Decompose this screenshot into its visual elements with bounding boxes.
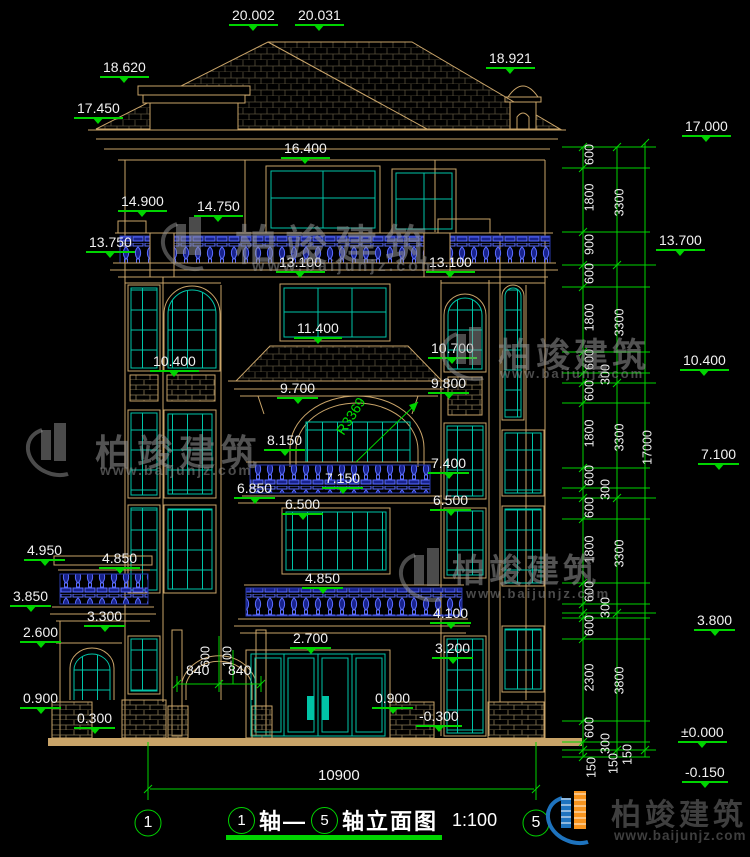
baijun-logo-icon	[545, 786, 607, 850]
watermark-logo-icon	[160, 212, 230, 274]
right-level-label: 7.100	[698, 447, 739, 465]
dim-text: 150	[608, 742, 621, 786]
level-label: 4.950	[24, 543, 65, 561]
dim-text: 3300	[614, 532, 627, 576]
right-level-label: ±0.000	[678, 725, 727, 743]
level-label: 0.300	[74, 711, 115, 729]
level-label: 8.150	[264, 433, 305, 451]
overall-width-dim: 10900	[318, 767, 360, 784]
level-label: 6.850	[234, 481, 275, 499]
right-level-label: 10.400	[680, 353, 729, 371]
dim-text: 150	[586, 746, 599, 790]
logo-tower-icon	[574, 791, 586, 829]
level-label: 16.400	[281, 141, 330, 159]
watermark-site: www.baijunjz.com	[500, 366, 644, 381]
logo-tower-icon	[41, 430, 51, 460]
level-label: 17.450	[74, 101, 123, 119]
level-label: 0.900	[372, 691, 413, 709]
level-label: 0.900	[20, 691, 61, 709]
ground-floor	[128, 626, 544, 736]
level-label: 13.750	[86, 235, 135, 253]
watermark-site: www.baijunjz.com	[252, 258, 438, 276]
logo-tower-icon	[561, 798, 571, 828]
watermark-logo-icon	[25, 418, 89, 478]
drawing-title: 1 轴— 5 轴立面图 1:100	[228, 804, 497, 836]
dim-text: 2300	[584, 656, 597, 700]
dim-text: 600	[584, 133, 597, 177]
level-label: 4.850	[302, 571, 343, 589]
roof-cupola	[505, 86, 541, 129]
logo-tower-icon	[176, 224, 186, 254]
watermark-logo-icon	[440, 322, 500, 378]
level-label: 4.100	[430, 606, 471, 624]
title-text-1: 轴—	[259, 804, 307, 836]
level-label: 20.002	[229, 8, 278, 26]
ground-line	[48, 738, 582, 746]
dim-text: 3300	[614, 181, 627, 225]
baijun-brand-block: 柏竣建筑 www.baijunjz.com	[545, 784, 750, 854]
watermark-site: www.baijunjz.com	[466, 586, 610, 601]
right-level-label: -0.150	[682, 765, 728, 783]
level-label: 7.400	[428, 456, 469, 474]
dim-text: 3800	[614, 659, 627, 703]
dim-text: 600	[584, 252, 597, 296]
title-text-2: 轴立面图	[342, 804, 438, 836]
dim-text: 150	[622, 733, 635, 777]
level-label: 10.400	[150, 354, 199, 372]
watermark-logo-icon	[398, 543, 456, 597]
logo-tower-icon	[54, 423, 66, 461]
logo-tower-icon	[189, 217, 201, 255]
dim-text: 300	[600, 468, 613, 512]
level-label: 3.300	[84, 609, 125, 627]
brand-site: www.baijunjz.com	[614, 828, 747, 843]
title-axis-bubble-5: 5	[311, 807, 338, 834]
dim-text: 600	[200, 635, 213, 679]
watermark-brand: 柏竣建筑	[452, 544, 600, 592]
level-label: 11.400	[294, 321, 342, 339]
level-label: 9.700	[277, 381, 318, 399]
cad-elevation-sheet: 20.002 20.031 18.620 17.450 18.921 16.40…	[0, 0, 750, 857]
dim-text: 3300	[614, 416, 627, 460]
dim-text: 1800	[584, 176, 597, 220]
right-level-label: 17.000	[682, 119, 731, 137]
level-label: 2.600	[20, 625, 61, 643]
level-label: 6.500	[430, 493, 471, 511]
right-level-label: 3.800	[694, 613, 735, 631]
level-label: 3.850	[10, 589, 51, 607]
level-label: 4.850	[99, 551, 140, 569]
level-label: 20.031	[295, 8, 344, 26]
level-label: 2.700	[290, 631, 331, 649]
watermark-site: www.baijunjz.com	[100, 462, 253, 478]
logo-tower-icon	[427, 548, 439, 586]
title-axis-bubble-1: 1	[228, 807, 255, 834]
level-label: 3.200	[432, 641, 473, 659]
chimney	[138, 86, 250, 130]
dim-text: 100	[222, 635, 235, 679]
dim-text: 600	[584, 486, 597, 530]
level-label: -0.300	[416, 709, 462, 727]
logo-tower-icon	[456, 334, 466, 364]
level-label: 14.900	[118, 194, 167, 212]
level-label: 7.150	[322, 471, 363, 489]
level-label: 18.921	[486, 51, 535, 69]
logo-tower-icon	[469, 327, 481, 365]
title-scale: 1:100	[452, 810, 497, 831]
right-level-label: 13.700	[656, 233, 705, 251]
level-label: 6.500	[282, 497, 323, 515]
dim-text: 1800	[584, 412, 597, 456]
logo-tower-icon	[414, 555, 424, 585]
dim-text: 600	[584, 604, 597, 648]
axis-bubble-1: 1	[135, 814, 161, 832]
dim-text: 17000	[642, 426, 655, 470]
dim-text: 600	[584, 706, 597, 750]
level-label: 18.620	[100, 60, 149, 78]
